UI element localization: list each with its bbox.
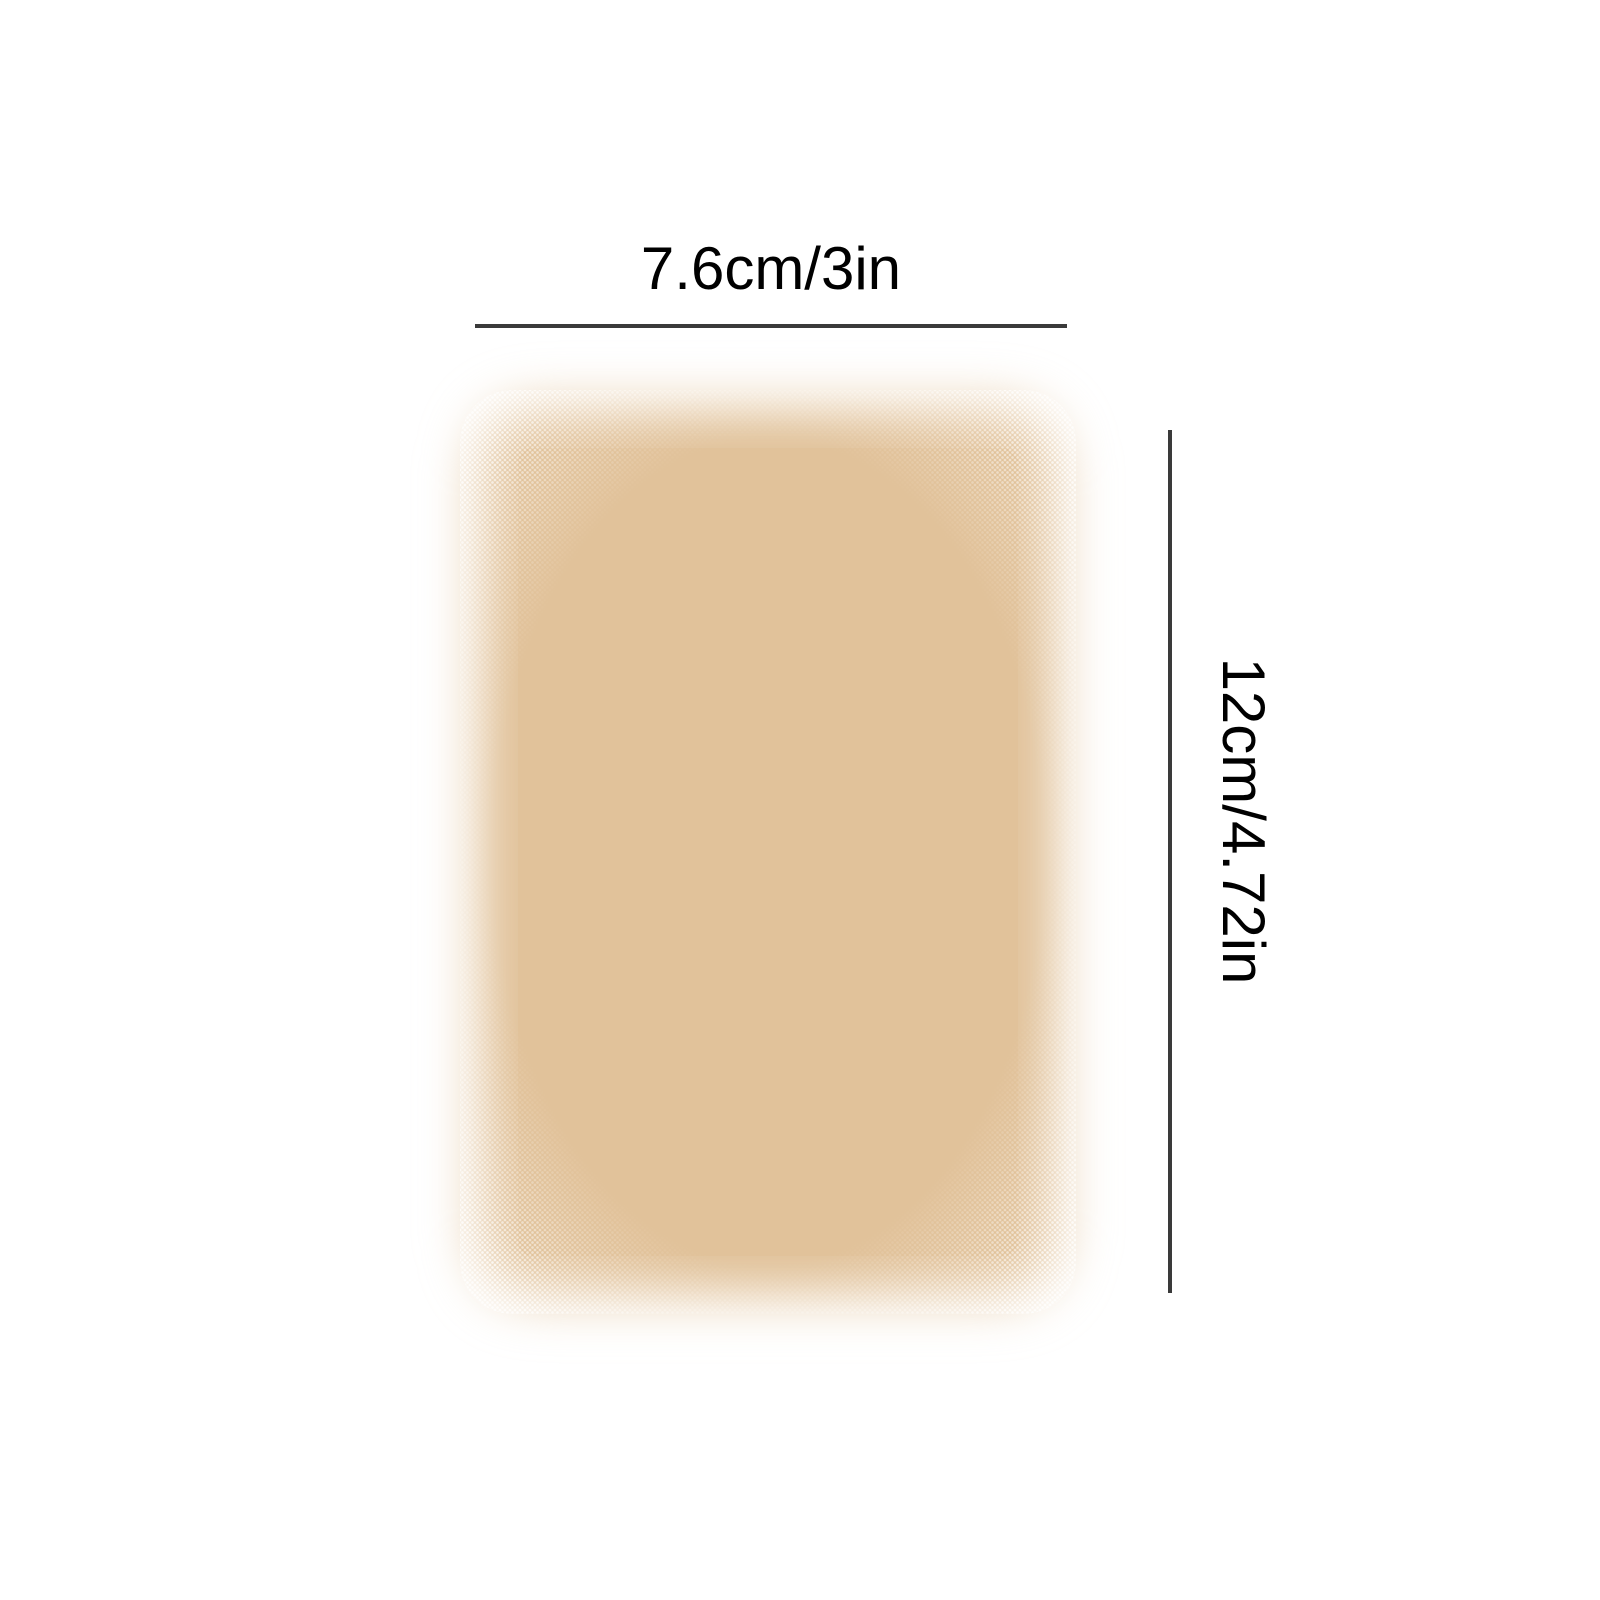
patch-halftone-texture [460,390,1076,1314]
width-dimension-line [475,324,1067,328]
width-dimension-label: 7.6cm/3in [473,238,1069,300]
product-patch [458,388,1078,1316]
height-dimension-label: 12cm/4.72in [1212,611,1274,1031]
product-dimension-diagram: 7.6cm/3in 12cm/4.72in [0,0,1600,1600]
height-dimension-line [1168,430,1172,1293]
